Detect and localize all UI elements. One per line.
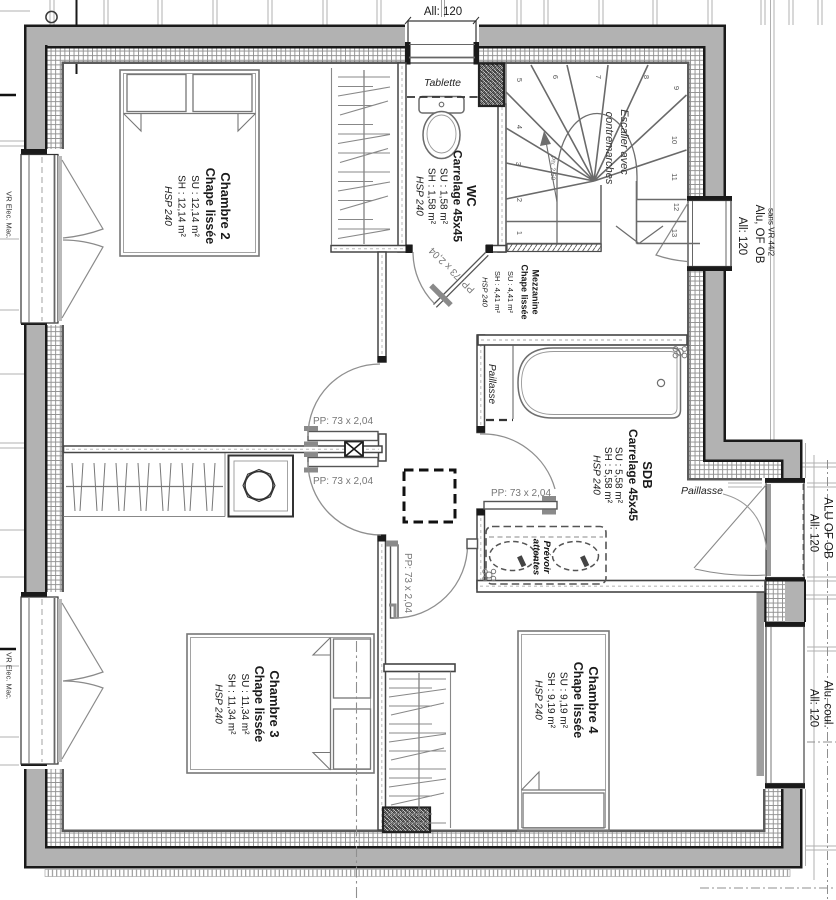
svg-text:Chambre 3: Chambre 3: [267, 670, 282, 737]
svg-text:Paillasse: Paillasse: [486, 364, 497, 404]
svg-text:SH : 1,58 m²: SH : 1,58 m²: [426, 168, 437, 225]
svg-text:12: 12: [672, 203, 681, 211]
svg-text:SH : 11,34 m²: SH : 11,34 m²: [226, 674, 237, 736]
svg-text:Carrelage 45x45: Carrelage 45x45: [626, 429, 640, 521]
svg-text:4: 4: [515, 125, 524, 129]
svg-text:All: 120: All: 120: [424, 6, 462, 18]
svg-text:SU : 5,58 m²: SU : 5,58 m²: [613, 447, 624, 504]
svg-text:11: 11: [670, 173, 679, 181]
svg-text:PP: 73 x 2,04: PP: 73 x 2,04: [313, 416, 373, 427]
svg-text:HSP 240: HSP 240: [162, 186, 173, 226]
svg-text:9: 9: [672, 86, 681, 90]
svg-text:2: 2: [515, 198, 524, 202]
svg-text:SU : 1,58 m²: SU : 1,58 m²: [438, 168, 449, 225]
svg-text:1: 1: [515, 231, 524, 235]
svg-text:8: 8: [642, 75, 651, 79]
svg-text:HSP 240: HSP 240: [591, 455, 602, 495]
svg-text:attentes: attentes: [531, 539, 542, 575]
svg-text:10: 10: [670, 136, 679, 144]
svg-text:HSP 240: HSP 240: [414, 176, 425, 216]
svg-text:Alu. coul.: Alu. coul.: [822, 680, 834, 727]
svg-text:PP: 73 x 2,04: PP: 73 x 2,04: [313, 476, 373, 487]
svg-text:SDB: SDB: [640, 461, 655, 488]
svg-text:3: 3: [514, 162, 523, 166]
svg-text:Prévoir: Prévoir: [541, 541, 552, 575]
svg-text:All: 120: All: 120: [808, 514, 820, 552]
svg-text:HSP 240: HSP 240: [533, 680, 544, 720]
svg-text:HSP 240: HSP 240: [481, 277, 490, 308]
svg-text:HSP 240: HSP 240: [213, 684, 224, 724]
svg-text:Tablette: Tablette: [424, 77, 461, 89]
svg-text:SU : 9,19 m²: SU : 9,19 m²: [558, 672, 569, 729]
svg-text:SU : 11,34 m²: SU : 11,34 m²: [239, 674, 250, 736]
svg-text:All: 120: All: 120: [736, 217, 748, 255]
svg-text:SU : 4,41 m²: SU : 4,41 m²: [506, 271, 515, 314]
svg-text:PP: 73 x 2,04: PP: 73 x 2,04: [402, 553, 413, 613]
svg-text:SH : 12,14 m²: SH : 12,14 m²: [176, 175, 187, 237]
svg-text:5: 5: [515, 78, 524, 82]
svg-text:Mezzanine: Mezzanine: [531, 269, 541, 314]
svg-text:Escalier avec: Escalier avec: [618, 109, 630, 175]
svg-text:PP: 73 x 2,04: PP: 73 x 2,04: [491, 488, 551, 499]
svg-text:6: 6: [551, 75, 560, 79]
svg-text:SU : 12,14 m²: SU : 12,14 m²: [189, 175, 200, 237]
svg-text:Chambre 4: Chambre 4: [586, 666, 601, 734]
svg-text:Alu, OF OB: Alu, OF OB: [753, 205, 765, 264]
svg-text:13: 13: [670, 229, 679, 237]
svg-text:Chape lissée: Chape lissée: [571, 662, 585, 738]
svg-text:Chape lissée: Chape lissée: [252, 666, 266, 742]
svg-text:contremarches: contremarches: [603, 112, 615, 185]
svg-text:SH : 5,58 m²: SH : 5,58 m²: [602, 447, 613, 504]
svg-text:SH : 4,41 m²: SH : 4,41 m²: [493, 271, 502, 314]
svg-text:Chape lissée: Chape lissée: [203, 168, 217, 244]
svg-text:Chape lissée: Chape lissée: [520, 264, 530, 319]
svg-text:Paillasse: Paillasse: [681, 485, 723, 497]
svg-text:WC: WC: [464, 185, 479, 207]
svg-text:VR Elec. Mac.: VR Elec. Mac.: [5, 652, 14, 700]
svg-text:Chambre 2: Chambre 2: [218, 172, 233, 239]
svg-text:All: 120: All: 120: [808, 689, 820, 727]
svg-text:ALU OF OB: ALU OF OB: [822, 497, 834, 559]
svg-text:Carrelage 45x45: Carrelage 45x45: [451, 150, 465, 242]
svg-text:SH : 9,19 m²: SH : 9,19 m²: [545, 672, 556, 729]
svg-text:Ph: 2,50: Ph: 2,50: [549, 156, 556, 181]
svg-text:VR Elec. Mac.: VR Elec. Mac.: [5, 191, 14, 239]
svg-text:sans VR 44/2: sans VR 44/2: [767, 208, 776, 257]
svg-text:7: 7: [594, 75, 603, 79]
